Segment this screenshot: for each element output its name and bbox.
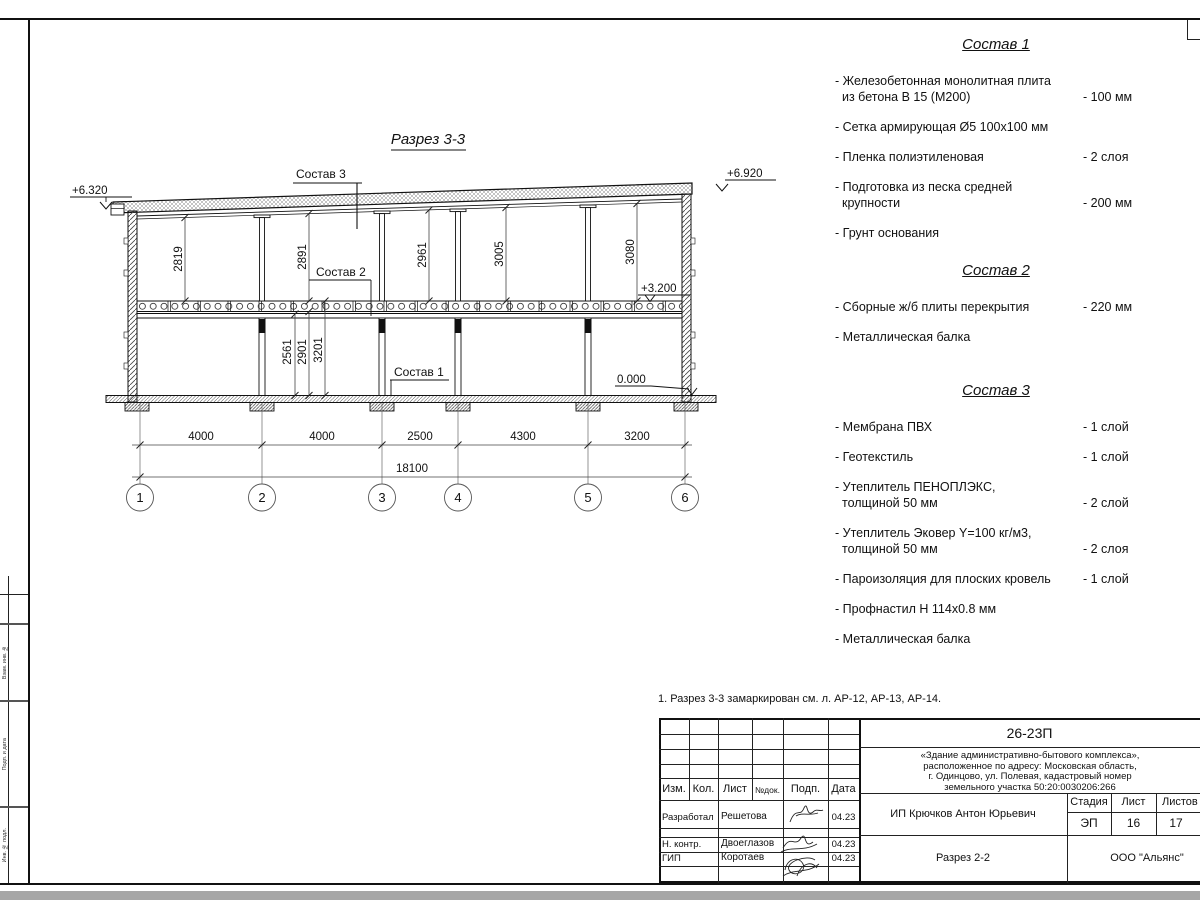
list-item: - Пароизоляция для плоских кровель - 1 с… — [835, 571, 1157, 587]
sheet-label: Лист — [1111, 796, 1156, 808]
signature-developer — [786, 802, 826, 826]
col-kol: Кол. — [689, 783, 718, 795]
svg-text:3201: 3201 — [313, 337, 325, 363]
sheet-note: 1. Разрез 3-3 замаркирован см. л. АР-12,… — [658, 693, 941, 705]
upper-dimension-labels: 2819 2891 2961 3005 3080 — [173, 239, 637, 272]
spec-1-title: Состав 1 — [835, 36, 1157, 53]
svg-text:+6.320: +6.320 — [72, 185, 108, 197]
list-item: - Пленка полиэтиленовая - 2 слоя — [835, 149, 1157, 165]
list-item: - Грунт основания — [835, 225, 1157, 241]
svg-text:4300: 4300 — [510, 431, 536, 443]
spec-2-title: Состав 2 — [835, 262, 1157, 279]
sheet-title: Разрез 2-2 — [859, 852, 1067, 864]
callout-sostav1: Состав 1 — [390, 365, 449, 395]
list-item: - Металлическая балка — [835, 631, 1157, 647]
role-ncontrol: Н. контр. — [662, 839, 701, 850]
role-gip: ГИП — [662, 853, 681, 864]
sheets-total: 17 — [1156, 816, 1196, 830]
margin-label-3: Инв. № подл. — [0, 808, 9, 883]
spec-list-2: Состав 2 - Сборные ж/б плиты перекрытия … — [835, 262, 1157, 359]
svg-text:Состав 1: Состав 1 — [394, 365, 444, 379]
company-name: ООО "Альянс" — [1067, 852, 1200, 864]
drawing-sheet: Разрез 3-3 — [0, 0, 1200, 900]
svg-text:0.000: 0.000 — [617, 374, 646, 386]
name-ncontrol: Двоеглазов — [721, 838, 774, 849]
list-item: - Металлическая балка — [835, 329, 1157, 345]
date-developer: 04.23 — [828, 812, 859, 823]
roof-slab — [111, 183, 692, 219]
client-name: ИП Крючков Антон Юрьевич — [859, 808, 1067, 820]
name-developer: Решетова — [721, 811, 767, 822]
span-dimension-line: 4000 4000 2500 4300 3200 — [132, 431, 692, 449]
svg-text:3200: 3200 — [624, 431, 650, 443]
name-gip: Коротаев — [721, 852, 764, 863]
section-title-text: Разрез 3-3 — [391, 131, 466, 148]
project-code: 26-23П — [859, 725, 1200, 741]
svg-text:2561: 2561 — [282, 339, 294, 365]
project-description: «Здание административно-бытового комплек… — [864, 751, 1196, 793]
signature-gip — [777, 830, 829, 882]
svg-text:18100: 18100 — [396, 463, 428, 475]
frame-bottom — [0, 883, 1200, 885]
list-item: - Профнастил Н 114х0.8 мм — [835, 601, 1157, 617]
date-gip: 04.23 — [828, 853, 859, 864]
col-data: Дата — [828, 783, 859, 795]
roof-gutter-edge — [111, 204, 124, 215]
spec-list-1: Состав 1 - Железобетонная монолитная пли… — [835, 36, 1157, 255]
stage-value: ЭП — [1067, 816, 1111, 830]
svg-text:2901: 2901 — [297, 339, 309, 365]
margin-label-2: Подп. и дата — [0, 702, 9, 806]
list-item: - Геотекстиль - 1 слой — [835, 449, 1157, 465]
svg-text:1: 1 — [136, 490, 143, 505]
list-item: - Сборные ж/б плиты перекрытия - 220 мм — [835, 299, 1157, 315]
frame-top — [0, 18, 1200, 20]
svg-text:+6.920: +6.920 — [727, 168, 763, 180]
svg-text:2961: 2961 — [417, 242, 429, 268]
svg-text:2819: 2819 — [173, 246, 185, 272]
scan-edge — [0, 891, 1200, 900]
foundation-pads — [125, 403, 698, 412]
elevation-roof-right: +6.920 — [716, 168, 776, 191]
list-item: - Железобетонная монолитная плита из бет… — [835, 73, 1157, 105]
svg-text:3: 3 — [378, 490, 385, 505]
svg-text:6: 6 — [681, 490, 688, 505]
list-item: - Сетка армирующая Ø5 100х100 мм — [835, 119, 1157, 135]
col-podp: Подп. — [783, 783, 828, 795]
svg-text:Состав 3: Состав 3 — [296, 167, 346, 181]
svg-text:4: 4 — [454, 490, 461, 505]
right-wall — [682, 194, 695, 402]
stage-label: Стадия — [1067, 796, 1111, 808]
left-wall — [124, 211, 137, 402]
lower-dimension-labels: 2561 2901 3201 — [282, 337, 325, 365]
svg-text:2500: 2500 — [407, 431, 433, 443]
svg-text:3005: 3005 — [494, 241, 506, 267]
total-dimension-line: 18100 — [132, 463, 692, 481]
role-developer: Разработал — [662, 812, 714, 823]
floor-slab — [137, 301, 682, 318]
svg-text:5: 5 — [584, 490, 591, 505]
frame-left — [28, 18, 30, 884]
list-item: - Утеплитель Эковер Y=100 кг/м3, толщино… — [835, 525, 1157, 557]
list-item: - Подготовка из песка средней крупности … — [835, 179, 1157, 211]
col-ndoc: №док. — [752, 785, 783, 795]
svg-text:+3.200: +3.200 — [641, 283, 677, 295]
spec-list-3: Состав 3 - Мембрана ПВХ - 1 слой - Геоте… — [835, 382, 1157, 661]
svg-text:Состав 2: Состав 2 — [316, 265, 366, 279]
list-item: - Мембрана ПВХ - 1 слой — [835, 419, 1157, 435]
sheets-label: Листов — [1162, 796, 1198, 808]
svg-text:2891: 2891 — [297, 244, 309, 270]
svg-text:4000: 4000 — [309, 431, 335, 443]
list-item: - Утеплитель ПЕНОПЛЭКС, толщиной 50 мм -… — [835, 479, 1157, 511]
margin-label-1: Взам. инв. № — [0, 625, 9, 700]
corner-code-box — [1187, 20, 1200, 40]
col-list: Лист — [718, 783, 752, 795]
axis-bubbles: 1 2 3 4 5 6 — [127, 484, 699, 511]
date-ncontrol: 04.23 — [828, 839, 859, 850]
sheet-number: 16 — [1111, 816, 1156, 830]
svg-text:4000: 4000 — [188, 431, 214, 443]
section-title: Разрез 3-3 — [391, 131, 466, 150]
title-block: Изм. Кол. Лист №док. Подп. Дата Разработ… — [659, 718, 1200, 883]
spec-3-title: Состав 3 — [835, 382, 1157, 399]
ground-slab — [106, 396, 716, 412]
svg-text:3080: 3080 — [625, 239, 637, 265]
col-izm: Изм. — [659, 783, 689, 795]
svg-text:2: 2 — [258, 490, 265, 505]
